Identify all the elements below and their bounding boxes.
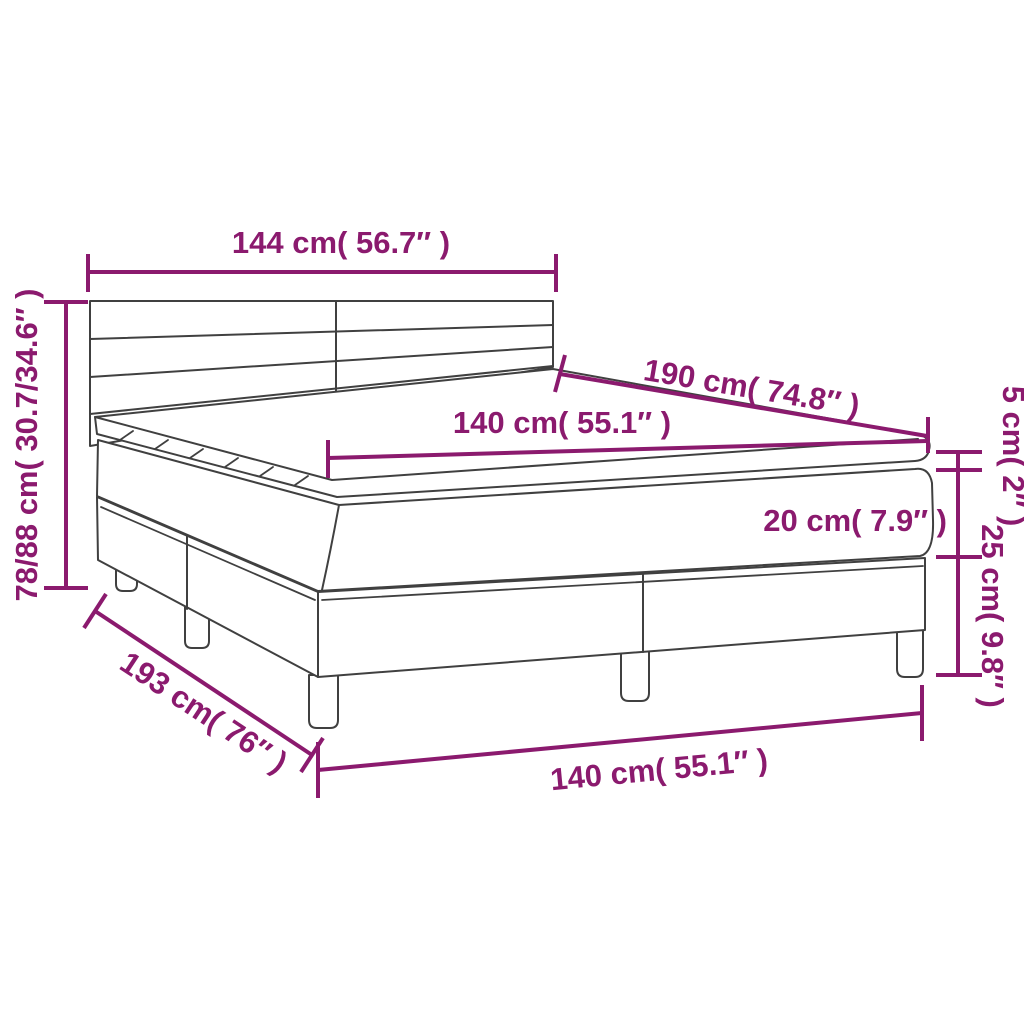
bed-dimension-diagram: 144 cm( 56.7″ ) 78/88 cm( 30.7/34.6″ ) 1… — [0, 0, 1024, 1024]
dim-mattress-thickness: 20 cm( 7.9″ ) — [763, 503, 947, 538]
dimension-label: 144 cm( 56.7″ ) — [232, 225, 450, 260]
dim-width-bottom: 140 cm( 55.1″ ) — [318, 685, 922, 798]
dimension-label: 20 cm( 7.9″ ) — [763, 503, 947, 538]
dimension-label: 140 cm( 55.1″ ) — [549, 742, 770, 797]
dimension-label: 25 cm( 9.8″ ) — [975, 524, 1010, 708]
dimension-label: 140 cm( 55.1″ ) — [453, 405, 671, 440]
dim-headboard-width: 144 cm( 56.7″ ) — [88, 225, 556, 292]
bed-leg — [897, 626, 923, 677]
dimension-tick — [84, 594, 106, 628]
dimension-label: 78/88 cm( 30.7/34.6″ ) — [9, 289, 44, 602]
diagram-canvas: 144 cm( 56.7″ ) 78/88 cm( 30.7/34.6″ ) 1… — [0, 0, 1024, 1024]
bed-leg — [309, 675, 338, 728]
dimension-label: 193 cm( 76″ ) — [114, 645, 294, 780]
bed-leg — [621, 649, 649, 701]
dimension-label: 5 cm( 2″ ) — [996, 386, 1024, 527]
dim-topper-thickness: 5 cm( 2″ ) — [996, 386, 1024, 527]
dim-overall-height: 78/88 cm( 30.7/34.6″ ) — [9, 289, 88, 602]
dim-base-height: 25 cm( 9.8″ ) — [975, 524, 1010, 708]
